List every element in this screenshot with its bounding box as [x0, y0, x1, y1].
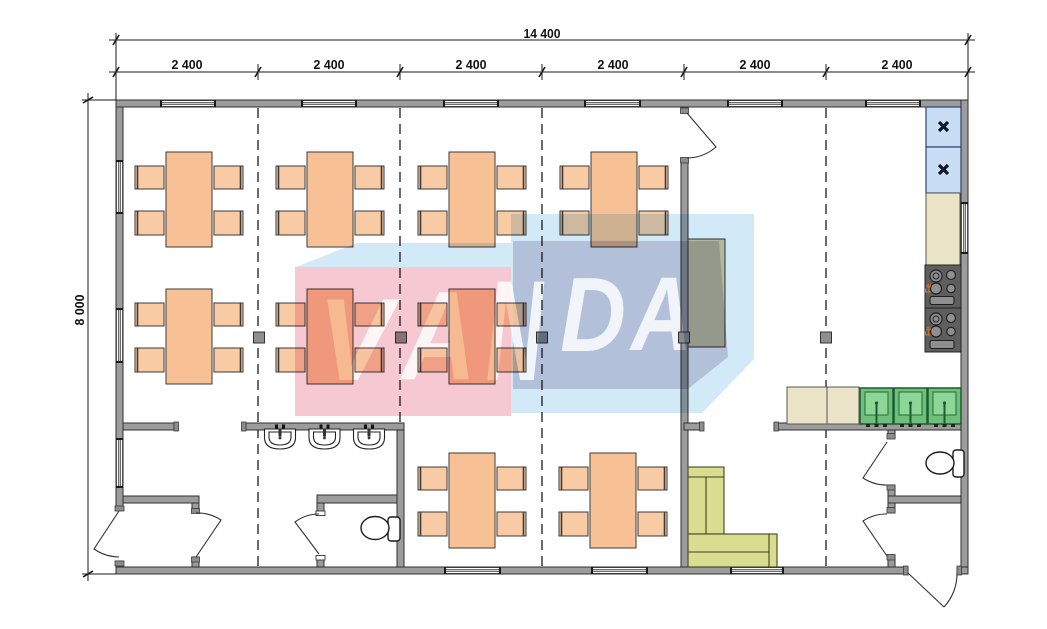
svg-text:2 400: 2 400	[740, 57, 771, 72]
svg-text:2 400: 2 400	[882, 57, 913, 72]
svg-text:2 400: 2 400	[314, 57, 345, 72]
svg-text:2 400: 2 400	[598, 57, 629, 72]
svg-text:2 400: 2 400	[456, 57, 487, 72]
svg-text:A: A	[400, 265, 476, 406]
svg-text:8 000: 8 000	[72, 295, 87, 326]
svg-text:Fe: Fe	[924, 283, 933, 293]
svg-text:2 400: 2 400	[172, 57, 203, 72]
svg-text:14 400: 14 400	[524, 26, 561, 41]
svg-text:Fe: Fe	[924, 326, 933, 336]
svg-text:D: D	[560, 256, 626, 374]
svg-text:V: V	[318, 274, 400, 405]
svg-text:A: A	[629, 256, 692, 373]
svg-text:N: N	[486, 252, 545, 411]
